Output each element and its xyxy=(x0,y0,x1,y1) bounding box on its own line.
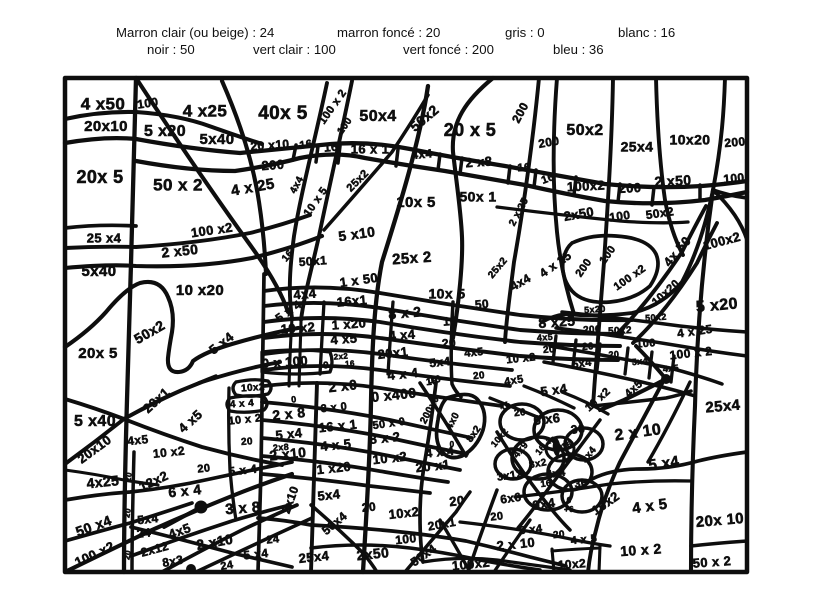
svg-text:9x4: 9x4 xyxy=(531,495,556,513)
svg-text:4x5: 4x5 xyxy=(537,332,554,343)
svg-text:16 x 1: 16 x 1 xyxy=(351,141,390,156)
svg-text:5x40: 5x40 xyxy=(200,131,235,148)
svg-text:10 x 2: 10 x 2 xyxy=(228,412,262,427)
svg-text:4 x 25: 4 x 25 xyxy=(230,175,276,199)
svg-text:1 x20: 1 x20 xyxy=(331,315,367,332)
svg-text:4 x4: 4 x4 xyxy=(388,326,416,343)
svg-text:50x2: 50x2 xyxy=(645,312,667,323)
svg-text:10 x2: 10 x2 xyxy=(506,351,537,366)
svg-text:5x4: 5x4 xyxy=(317,486,342,503)
svg-text:2 x 10: 2 x 10 xyxy=(614,421,663,444)
svg-text:25x4: 25x4 xyxy=(298,548,330,566)
svg-text:50: 50 xyxy=(474,297,489,312)
svg-text:6x6: 6x6 xyxy=(499,490,522,507)
svg-text:2 x 8: 2 x 8 xyxy=(272,404,307,423)
svg-text:4 x25: 4 x25 xyxy=(183,101,228,120)
svg-text:5 x10: 5 x10 xyxy=(337,223,376,244)
svg-text:4x5: 4x5 xyxy=(464,346,485,360)
svg-text:4x5: 4x5 xyxy=(503,373,524,388)
svg-text:0: 0 xyxy=(323,361,329,372)
svg-text:16: 16 xyxy=(299,138,314,152)
svg-text:100 x2: 100 x2 xyxy=(72,538,117,569)
svg-text:5x40: 5x40 xyxy=(82,263,117,280)
svg-text:100: 100 xyxy=(597,243,618,266)
svg-text:5 x4: 5 x4 xyxy=(539,381,568,400)
svg-text:20x1: 20x1 xyxy=(377,344,409,362)
svg-text:24: 24 xyxy=(266,533,281,546)
svg-text:50x 1: 50x 1 xyxy=(459,189,496,205)
svg-text:4 x 5: 4 x 5 xyxy=(320,436,352,454)
svg-text:16: 16 xyxy=(345,359,355,369)
svg-text:6 x6: 6 x6 xyxy=(533,410,561,428)
svg-text:20x10: 20x10 xyxy=(75,432,115,467)
svg-text:50x2: 50x2 xyxy=(608,325,632,337)
svg-text:9x4: 9x4 xyxy=(579,445,599,466)
svg-text:0 x400: 0 x400 xyxy=(371,384,418,405)
svg-text:4 x 25: 4 x 25 xyxy=(537,248,574,280)
svg-text:20x 5: 20x 5 xyxy=(76,167,123,187)
svg-text:4x25: 4x25 xyxy=(86,472,120,491)
svg-text:3 x 8: 3 x 8 xyxy=(225,499,261,518)
svg-text:100: 100 xyxy=(395,531,418,547)
svg-text:20: 20 xyxy=(241,436,254,448)
svg-text:100: 100 xyxy=(335,116,354,137)
svg-text:16x1: 16x1 xyxy=(336,292,368,310)
svg-text:6 x 4: 6 x 4 xyxy=(168,481,203,500)
svg-text:4x5: 4x5 xyxy=(662,363,679,375)
svg-text:10 x 2: 10 x 2 xyxy=(620,540,662,559)
svg-text:vert foncé : 200: vert foncé : 200 xyxy=(403,42,494,57)
svg-text:200: 200 xyxy=(583,324,601,336)
svg-text:50x2: 50x2 xyxy=(566,122,603,139)
svg-text:100: 100 xyxy=(136,95,159,112)
svg-text:10x20: 10x20 xyxy=(670,132,711,148)
svg-text:10 x20: 10 x20 xyxy=(176,282,224,299)
svg-text:25x4: 25x4 xyxy=(705,396,742,416)
svg-text:5 x40: 5 x40 xyxy=(74,413,116,430)
svg-text:8 x25: 8 x25 xyxy=(538,312,576,331)
svg-text:200: 200 xyxy=(618,180,642,196)
svg-text:5 x4: 5 x4 xyxy=(243,546,269,563)
svg-text:200: 200 xyxy=(573,256,594,279)
svg-text:20: 20 xyxy=(473,370,486,382)
svg-text:24: 24 xyxy=(136,525,152,540)
svg-text:100: 100 xyxy=(723,170,745,186)
svg-text:50 x4: 50 x4 xyxy=(73,512,113,540)
svg-text:2 x10: 2 x10 xyxy=(195,531,234,553)
svg-text:2 x 10: 2 x 10 xyxy=(496,534,536,553)
svg-text:2 x8: 2 x8 xyxy=(465,154,493,171)
svg-text:24: 24 xyxy=(220,559,235,573)
svg-text:blanc : 16: blanc : 16 xyxy=(618,25,675,40)
svg-text:5x20: 5x20 xyxy=(584,304,606,315)
svg-text:marron foncé : 20: marron foncé : 20 xyxy=(337,25,440,40)
svg-text:10 x2: 10 x2 xyxy=(152,444,185,461)
svg-text:4 x 4: 4 x 4 xyxy=(387,365,420,383)
svg-text:25x 2: 25x 2 xyxy=(392,249,433,269)
svg-text:5 x4: 5 x4 xyxy=(647,453,680,474)
svg-text:50x1: 50x1 xyxy=(298,253,327,269)
svg-text:20: 20 xyxy=(197,462,211,475)
svg-text:gris : 0: gris : 0 xyxy=(505,25,545,40)
svg-text:10 x2: 10 x2 xyxy=(372,449,408,468)
svg-text:4 x5: 4 x5 xyxy=(175,407,205,436)
svg-text:20: 20 xyxy=(123,471,134,482)
svg-text:8 x 2: 8 x 2 xyxy=(369,429,401,447)
svg-text:50 x 2: 50 x 2 xyxy=(692,553,731,571)
svg-text:16: 16 xyxy=(442,314,457,329)
svg-text:100: 100 xyxy=(608,208,631,225)
svg-text:20: 20 xyxy=(441,336,456,351)
svg-text:50x2: 50x2 xyxy=(406,101,441,134)
svg-text:4x0: 4x0 xyxy=(444,411,462,432)
svg-text:100 x2: 100 x2 xyxy=(612,263,648,294)
svg-text:50x2: 50x2 xyxy=(131,317,167,347)
svg-text:16: 16 xyxy=(540,478,552,489)
svg-text:2x50: 2x50 xyxy=(562,204,595,224)
svg-text:2x8: 2x8 xyxy=(273,442,290,453)
svg-text:16: 16 xyxy=(517,161,531,174)
svg-text:1 x20: 1 x20 xyxy=(316,459,352,478)
svg-text:100x2: 100x2 xyxy=(566,177,605,194)
svg-text:5 x20: 5 x20 xyxy=(695,295,738,316)
svg-text:vert clair : 100: vert clair : 100 xyxy=(253,42,336,57)
svg-text:5 x20: 5 x20 xyxy=(144,123,186,140)
svg-text:2 x0: 2 x0 xyxy=(328,376,358,395)
svg-text:5 x 4: 5 x 4 xyxy=(228,462,258,479)
svg-text:2x50: 2x50 xyxy=(356,544,390,563)
svg-text:5x4: 5x4 xyxy=(631,356,648,368)
svg-text:bleu : 36: bleu : 36 xyxy=(553,42,604,57)
svg-text:5 x4: 5 x4 xyxy=(275,425,304,443)
svg-text:20: 20 xyxy=(361,499,377,514)
svg-text:20: 20 xyxy=(490,510,504,523)
svg-text:4 x50: 4 x50 xyxy=(81,94,126,113)
svg-text:0: 0 xyxy=(291,394,297,405)
svg-text:100: 100 xyxy=(636,337,656,350)
svg-text:20 x10: 20 x10 xyxy=(250,137,290,154)
svg-text:20 x 5: 20 x 5 xyxy=(444,120,496,140)
svg-text:0 x 100: 0 x 100 xyxy=(261,353,308,371)
svg-text:20: 20 xyxy=(553,529,566,541)
svg-text:noir : 50: noir : 50 xyxy=(147,42,195,57)
svg-text:25 x4: 25 x4 xyxy=(87,230,122,245)
svg-text:200: 200 xyxy=(724,134,746,150)
svg-text:20x1: 20x1 xyxy=(140,384,173,416)
svg-text:2 x50: 2 x50 xyxy=(654,172,692,190)
svg-text:10x2: 10x2 xyxy=(557,556,586,572)
svg-text:8 x 2: 8 x 2 xyxy=(388,303,422,322)
svg-text:5x4: 5x4 xyxy=(429,354,452,370)
svg-text:36: 36 xyxy=(570,421,586,436)
svg-text:4 x5: 4 x5 xyxy=(330,331,358,348)
svg-text:50 x 2: 50 x 2 xyxy=(153,175,203,194)
svg-text:10x2: 10x2 xyxy=(241,382,266,395)
svg-text:3x12: 3x12 xyxy=(496,468,523,484)
svg-text:4x5: 4x5 xyxy=(127,432,150,448)
svg-text:25x2: 25x2 xyxy=(486,255,510,280)
svg-text:20: 20 xyxy=(608,349,619,360)
svg-text:10x 5: 10x 5 xyxy=(428,286,465,302)
svg-text:50x4: 50x4 xyxy=(408,541,439,569)
svg-text:0: 0 xyxy=(450,440,455,449)
svg-text:50x4: 50x4 xyxy=(359,108,396,125)
svg-text:20 x1: 20 x1 xyxy=(415,457,451,476)
svg-text:25x4: 25x4 xyxy=(621,139,654,155)
svg-text:10x2: 10x2 xyxy=(388,504,420,522)
svg-text:200: 200 xyxy=(261,157,285,174)
svg-text:20: 20 xyxy=(582,341,595,353)
svg-text:36: 36 xyxy=(574,477,589,491)
svg-text:20x 5: 20x 5 xyxy=(78,345,118,362)
svg-text:6: 6 xyxy=(567,496,572,505)
svg-text:2 x50: 2 x50 xyxy=(161,241,200,261)
svg-text:20x10: 20x10 xyxy=(84,118,128,135)
svg-text:+6: +6 xyxy=(564,505,574,514)
svg-text:Marron clair (ou beige) : 24: Marron clair (ou beige) : 24 xyxy=(116,25,274,40)
svg-text:10 x2: 10 x2 xyxy=(280,319,316,336)
svg-text:20x 10: 20x 10 xyxy=(695,510,745,531)
svg-text:4 x 4: 4 x 4 xyxy=(230,398,255,411)
svg-text:20: 20 xyxy=(543,344,556,356)
svg-text:4 x 5: 4 x 5 xyxy=(631,496,668,518)
svg-text:20: 20 xyxy=(514,407,527,419)
svg-text:2x10: 2x10 xyxy=(279,484,302,515)
svg-text:200: 200 xyxy=(509,100,531,125)
svg-text:1 x 50: 1 x 50 xyxy=(339,270,379,290)
svg-text:16: 16 xyxy=(426,376,439,388)
svg-text:20: 20 xyxy=(122,549,133,560)
svg-text:10x 5: 10x 5 xyxy=(396,194,436,211)
svg-text:20x1: 20x1 xyxy=(427,515,457,534)
svg-text:20: 20 xyxy=(122,507,133,518)
svg-text:40x 5: 40x 5 xyxy=(258,103,308,124)
svg-text:4x4: 4x4 xyxy=(411,146,433,162)
svg-text:16: 16 xyxy=(323,140,338,155)
svg-text:8x3: 8x3 xyxy=(161,552,184,569)
svg-text:20: 20 xyxy=(449,493,466,510)
svg-text:200: 200 xyxy=(537,133,560,150)
